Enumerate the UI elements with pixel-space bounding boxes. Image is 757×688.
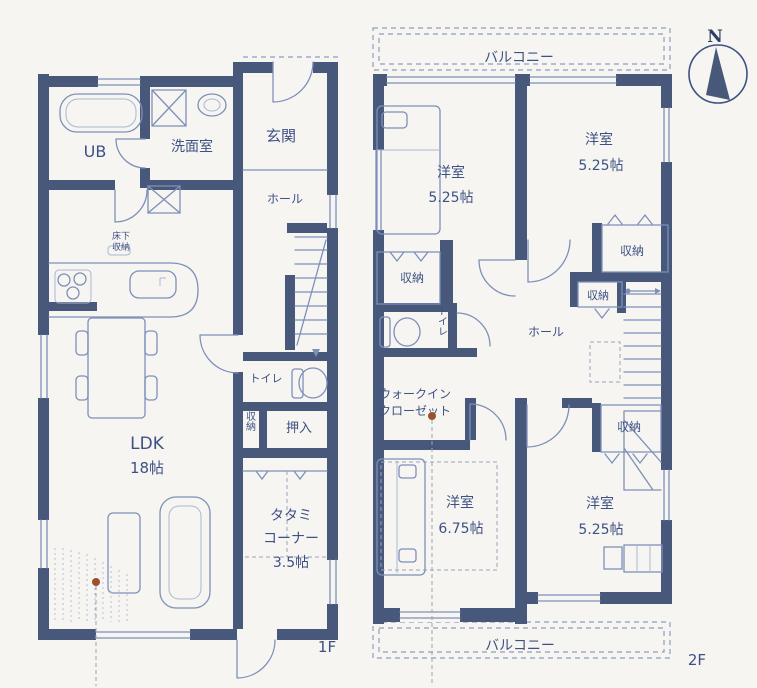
desk-icon-se xyxy=(604,545,662,572)
floor1-stairs-treads xyxy=(295,237,327,345)
stove-icon xyxy=(55,270,91,303)
label-ldk-size: 18帖 xyxy=(130,459,164,477)
floorplan-image: UB 洗面室 玄関 ホール トイレ 押入 収納 床下 収納 LDK 18帖 タタ… xyxy=(0,0,757,688)
label-hall-2f: ホール xyxy=(528,325,564,339)
compass-needle xyxy=(706,47,730,100)
label-bedroom-se-size: 5.25帖 xyxy=(578,522,623,538)
label-bedroom-se: 洋室 xyxy=(586,495,614,512)
living-table-icon xyxy=(108,513,140,593)
label-bedroom-nw: 洋室 xyxy=(437,164,465,181)
desk-chair xyxy=(604,547,622,569)
chair xyxy=(76,376,88,400)
sofa-icon xyxy=(160,497,210,608)
toilet-bowl xyxy=(394,318,420,346)
floor-hatch-lines xyxy=(55,548,127,622)
bed-icon-sw xyxy=(377,459,425,575)
toilet-icon-2f xyxy=(380,317,420,347)
kitchen-sink-icon xyxy=(130,271,176,298)
washbasin-outline xyxy=(198,94,226,116)
label-bedroom-sw-size: 6.75帖 xyxy=(438,521,483,537)
label-tatami-2: コーナー xyxy=(263,531,319,547)
label-unit-bath: UB xyxy=(84,142,107,161)
washing-machine-icon xyxy=(152,90,186,126)
floor2-plan: バルコニー 洋室 5.25帖 洋室 5.25帖 収納 収納 収納 トイレ ホール… xyxy=(373,28,706,669)
compass-icon: N xyxy=(689,27,747,103)
label-closet-nw: 収納 xyxy=(400,271,424,285)
compass-north-label: N xyxy=(707,27,723,47)
bed-outline xyxy=(377,459,425,575)
label-toilet-1f: トイレ xyxy=(250,372,283,385)
label-closet-hall: 収納 xyxy=(587,289,609,302)
label-tatami-size: 3.5帖 xyxy=(273,555,309,571)
label-hall-1f: ホール xyxy=(267,192,303,206)
floor1-plan: UB 洗面室 玄関 ホール トイレ 押入 収納 床下 収納 LDK 18帖 タタ… xyxy=(38,57,338,678)
label-bedroom-nw-size: 5.25帖 xyxy=(428,190,473,206)
label-tatami-1: タタミ xyxy=(270,508,312,524)
bathtub-icon xyxy=(60,94,142,132)
label-entrance: 玄関 xyxy=(266,127,296,145)
floorplan-canvas: UB 洗面室 玄関 ホール トイレ 押入 収納 床下 収納 LDK 18帖 タタ… xyxy=(0,0,757,688)
bathtub-outline xyxy=(60,94,142,132)
chair xyxy=(145,376,157,400)
stove-burner xyxy=(74,273,86,285)
bed-pillow xyxy=(382,112,407,128)
stairs-landing-dashed xyxy=(590,342,620,382)
underfloor-storage-icon xyxy=(148,186,180,213)
stove-burner xyxy=(58,274,70,286)
label-oshiire: 押入 xyxy=(286,421,312,436)
floor2-walls xyxy=(373,74,672,624)
label-floor1: 1F xyxy=(318,638,336,656)
label-closet-ne: 収納 xyxy=(620,244,644,258)
sofa-seat xyxy=(169,506,201,599)
label-floor2: 2F xyxy=(688,651,706,669)
desk-drawer-lines xyxy=(637,545,650,572)
label-washroom: 洗面室 xyxy=(171,138,213,155)
label-bedroom-sw: 洋室 xyxy=(446,494,474,511)
desk xyxy=(624,545,662,572)
label-wic-1: ウォークイン xyxy=(379,387,451,401)
bed-outline xyxy=(377,106,440,234)
bed-pillow xyxy=(399,549,416,562)
bed-icon-nw xyxy=(377,106,440,234)
washbasin-inner xyxy=(204,99,220,111)
label-wic-2: クローゼット xyxy=(379,404,451,418)
label-balcony-south: バルコニー xyxy=(485,638,555,654)
sofa-outline xyxy=(160,497,210,608)
marker-dot-1f xyxy=(92,578,100,586)
label-ldk: LDK xyxy=(130,434,165,454)
dining-table-set-icon xyxy=(76,318,157,418)
label-storage-1f: 収納 xyxy=(244,411,256,432)
label-bedroom-ne-size: 5.25帖 xyxy=(578,158,623,174)
label-bedroom-ne: 洋室 xyxy=(585,131,613,148)
washbasin-icon xyxy=(198,94,226,116)
dining-table xyxy=(88,318,145,418)
toilet-icon-1f xyxy=(292,368,327,398)
label-balcony-north: バルコニー xyxy=(484,50,554,66)
chair xyxy=(145,331,157,355)
label-underfloor-storage-2: 収納 xyxy=(112,241,130,253)
kitchen-sink-outline xyxy=(130,271,176,298)
chair xyxy=(76,331,88,355)
label-toilet-2f: トイレ xyxy=(436,306,448,336)
label-underfloor-storage-1: 床下 xyxy=(112,230,130,242)
toilet-tank xyxy=(292,369,303,398)
marker-dot-2f xyxy=(428,412,436,420)
stove-burner xyxy=(67,287,79,299)
bed-pillow xyxy=(399,465,416,478)
stairs-direction-arrow xyxy=(655,288,661,294)
bathtub-inner xyxy=(66,99,136,127)
label-closet-se: 収納 xyxy=(617,420,641,434)
kitchen-faucet xyxy=(160,278,166,286)
